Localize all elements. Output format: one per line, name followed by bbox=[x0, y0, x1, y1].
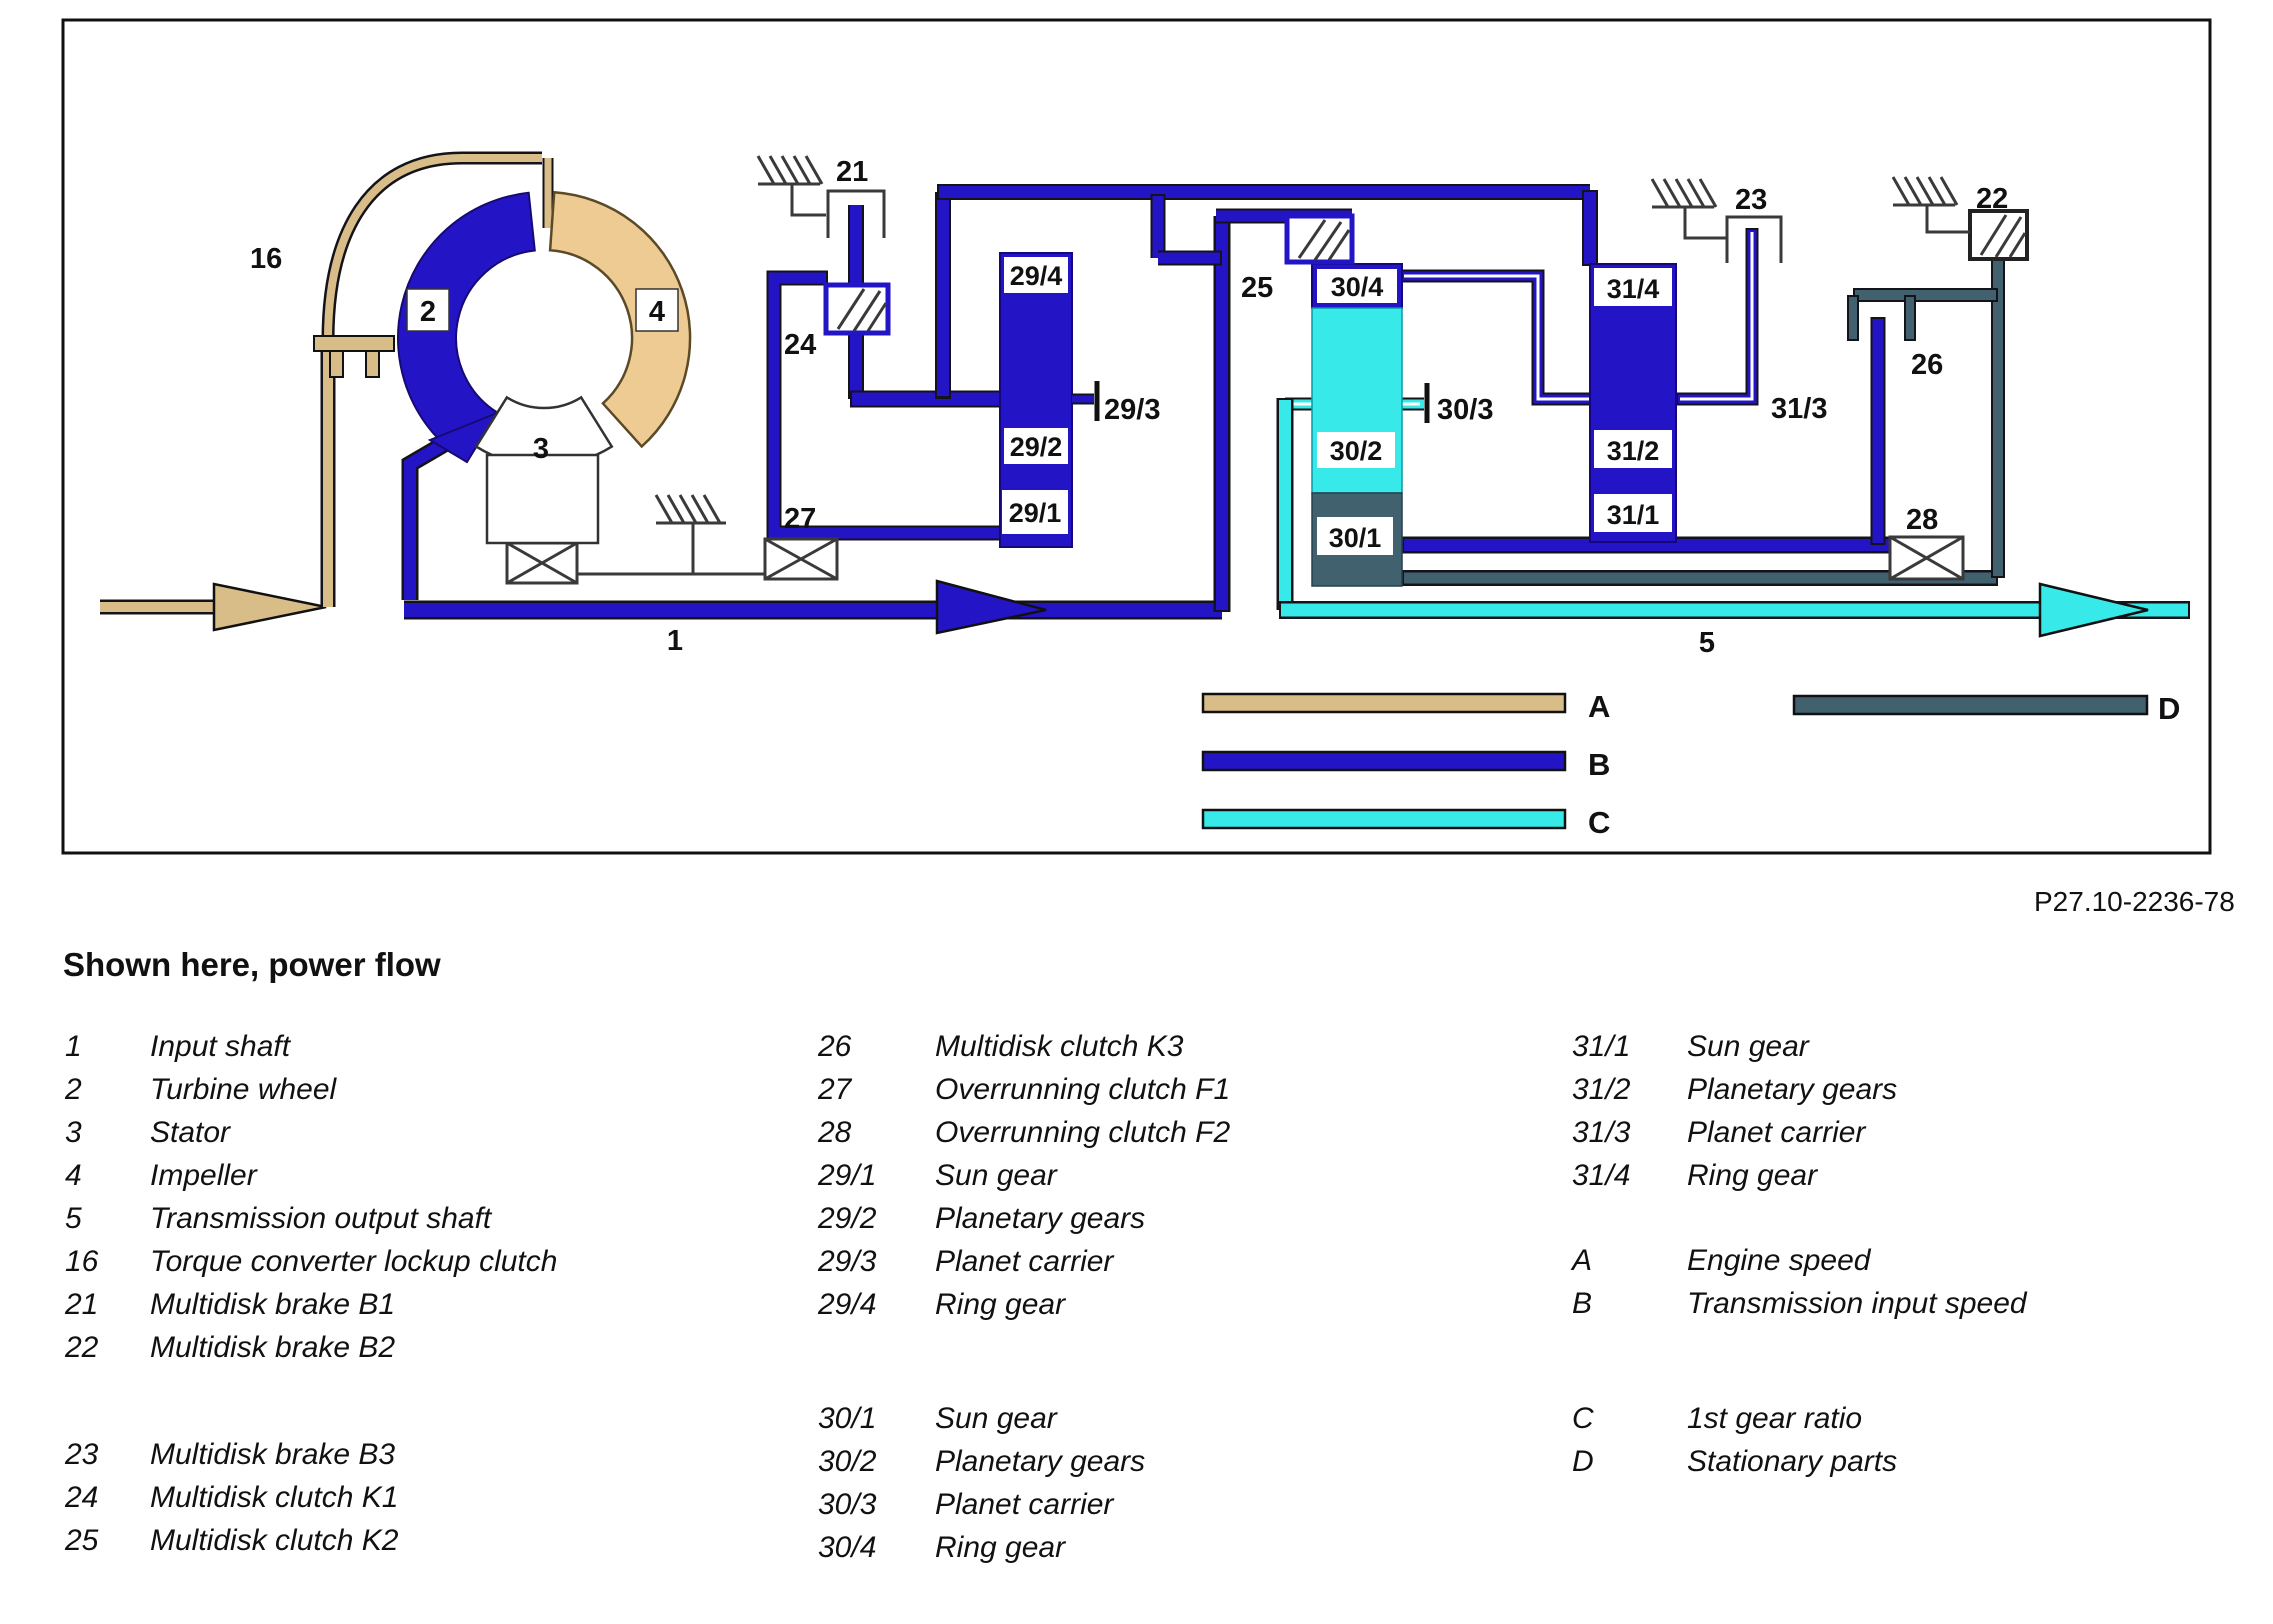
brake-b2-pack bbox=[1970, 211, 2027, 259]
legend-label-B: B bbox=[1588, 747, 1610, 782]
figure-code: P27.10-2236-78 bbox=[2034, 886, 2235, 918]
legend-bar-D bbox=[1794, 696, 2147, 714]
clutch-k2-pack bbox=[1287, 216, 1352, 262]
page: A B C D 16 2 4 3 21 24 27 25 29/3 30/3 3… bbox=[0, 0, 2273, 1624]
legend-item: 26Multidisk clutch K3 bbox=[818, 1030, 1183, 1064]
legend-item: 30/1Sun gear bbox=[818, 1402, 1057, 1436]
label-26: 26 bbox=[1911, 349, 1943, 381]
label-31-4: 31/4 bbox=[1607, 274, 1660, 304]
legend-item: C1st gear ratio bbox=[1572, 1402, 1862, 1436]
label-29-4: 29/4 bbox=[1010, 261, 1063, 291]
legend-item: 30/3Planet carrier bbox=[818, 1488, 1113, 1522]
legend-item: 3Stator bbox=[65, 1116, 230, 1150]
lockup-clutch-prong bbox=[330, 351, 343, 377]
legend-item: 16Torque converter lockup clutch bbox=[65, 1245, 557, 1279]
overrunning-clutch-f1 bbox=[765, 539, 837, 579]
legend-item: 25Multidisk clutch K2 bbox=[65, 1524, 398, 1558]
label-30-3: 30/3 bbox=[1437, 394, 1493, 426]
legend-item: 31/4Ring gear bbox=[1572, 1159, 1817, 1193]
legend-item: 30/2Planetary gears bbox=[818, 1445, 1145, 1479]
legend-label-D: D bbox=[2158, 691, 2180, 726]
legend-item: 4Impeller bbox=[65, 1159, 257, 1193]
label-29-1: 29/1 bbox=[1009, 498, 1062, 528]
legend-item: 5Transmission output shaft bbox=[65, 1202, 491, 1236]
overrunning-clutch-f2 bbox=[1890, 537, 1963, 579]
clutch-k1-pack bbox=[826, 285, 888, 333]
legend-bar-A bbox=[1203, 694, 1565, 712]
legend-item: BTransmission input speed bbox=[1572, 1287, 2027, 1321]
label-31-1: 31/1 bbox=[1607, 500, 1660, 530]
legend-item: 1Input shaft bbox=[65, 1030, 290, 1064]
label-22: 22 bbox=[1976, 183, 2008, 215]
legend-item: 31/1Sun gear bbox=[1572, 1030, 1809, 1064]
legend-item: 28Overrunning clutch F2 bbox=[818, 1116, 1230, 1150]
label-31-2: 31/2 bbox=[1607, 436, 1660, 466]
diagram-frame bbox=[63, 20, 2210, 853]
legend-item: 22Multidisk brake B2 bbox=[65, 1331, 395, 1365]
page-title: Shown here, power flow bbox=[63, 946, 441, 984]
label-1: 1 bbox=[667, 625, 683, 657]
stator-hub bbox=[487, 455, 598, 543]
legend-item: 29/3Planet carrier bbox=[818, 1245, 1113, 1279]
label-30-4: 30/4 bbox=[1331, 272, 1384, 302]
legend-item: 21Multidisk brake B1 bbox=[65, 1288, 395, 1322]
legend-item: AEngine speed bbox=[1572, 1244, 1871, 1278]
lockup-clutch-plate bbox=[314, 336, 394, 351]
label-29-2: 29/2 bbox=[1010, 432, 1063, 462]
legend-item: 29/4Ring gear bbox=[818, 1288, 1065, 1322]
label-30-1: 30/1 bbox=[1329, 523, 1382, 553]
label-29-3: 29/3 bbox=[1104, 394, 1160, 426]
legend-item: 29/2Planetary gears bbox=[818, 1202, 1145, 1236]
legend-item: 30/4Ring gear bbox=[818, 1531, 1065, 1565]
lockup-clutch-prong bbox=[366, 351, 379, 377]
label-3: 3 bbox=[533, 433, 549, 465]
legend-item: 29/1Sun gear bbox=[818, 1159, 1057, 1193]
powerflow-diagram: A B C D 16 2 4 3 21 24 27 25 29/3 30/3 3… bbox=[0, 0, 2273, 870]
legend-bar-B bbox=[1203, 752, 1565, 770]
label-16: 16 bbox=[250, 243, 282, 275]
legend-label-A: A bbox=[1588, 689, 1610, 724]
label-30-2: 30/2 bbox=[1330, 436, 1383, 466]
legend-item: 24Multidisk clutch K1 bbox=[65, 1481, 398, 1515]
label-31-3: 31/3 bbox=[1771, 393, 1827, 425]
stator-one-way-clutch bbox=[507, 543, 577, 583]
legend-bar-C bbox=[1203, 810, 1565, 828]
label-5: 5 bbox=[1699, 627, 1715, 659]
legend-item: 31/3Planet carrier bbox=[1572, 1116, 1865, 1150]
label-27: 27 bbox=[784, 503, 816, 535]
legend-item: 27Overrunning clutch F1 bbox=[818, 1073, 1230, 1107]
label-24: 24 bbox=[784, 329, 816, 361]
legend-item: DStationary parts bbox=[1572, 1445, 1897, 1479]
label-25: 25 bbox=[1241, 272, 1273, 304]
label-4: 4 bbox=[649, 296, 665, 328]
legend-item: 2Turbine wheel bbox=[65, 1073, 336, 1107]
legend-label-C: C bbox=[1588, 805, 1610, 840]
label-21: 21 bbox=[836, 156, 868, 188]
label-23: 23 bbox=[1735, 184, 1767, 216]
legend-item: 31/2Planetary gears bbox=[1572, 1073, 1897, 1107]
legend-item: 23Multidisk brake B3 bbox=[65, 1438, 395, 1472]
label-2: 2 bbox=[420, 296, 436, 328]
label-28: 28 bbox=[1906, 504, 1938, 536]
